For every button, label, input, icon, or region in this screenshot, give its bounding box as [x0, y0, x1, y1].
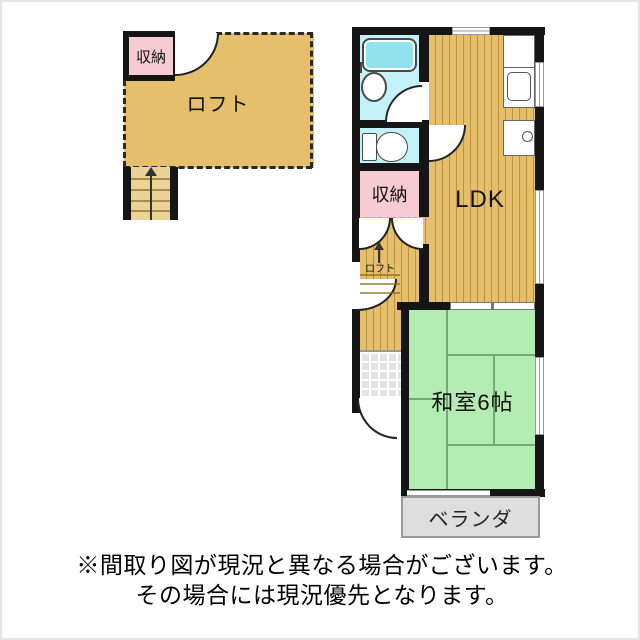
kitchen-counter-divider	[503, 67, 535, 68]
wall-right-seg	[535, 435, 544, 497]
ladder-rung	[360, 274, 400, 276]
wall-right-seg	[535, 27, 544, 62]
toilet-bowl-icon	[376, 132, 408, 162]
ladder-rung	[360, 283, 400, 285]
loft-room-label: ロフト	[168, 90, 268, 114]
sliding-door-ldk-japanese-room	[450, 302, 535, 310]
veranda: ベランダ	[401, 496, 540, 538]
kitchen-sink-icon	[507, 72, 531, 101]
wall-seam-upper	[419, 27, 429, 82]
wall-seam-lower	[419, 244, 429, 302]
toilet-tank-icon	[362, 133, 377, 161]
window-top	[452, 27, 490, 35]
storage-room: 収納	[360, 171, 419, 217]
window-kitchen	[535, 62, 544, 107]
stairs-wall-right	[170, 167, 178, 220]
wall-toilet-storage	[354, 163, 429, 171]
wall-top	[352, 27, 545, 35]
floor-plan: 収納 ロフト 収納 和室6帖	[0, 0, 640, 640]
wall-japanese-room-top	[397, 302, 450, 310]
disclaimer-line-2: その場合には現況優先となります。	[2, 580, 640, 610]
disclaimer: ※間取り図が現況と異なる場合がございます。 その場合には現況優先となります。	[2, 550, 640, 610]
entrance-door-arc	[357, 398, 397, 439]
loft-closet: 収納	[123, 31, 175, 81]
loft-border-right	[310, 32, 313, 168]
stairs-up-arrow-icon	[145, 167, 157, 176]
loft-border-top	[216, 32, 313, 35]
japanese-room-label: 和室6帖	[410, 388, 535, 414]
window-ldk	[535, 190, 544, 284]
veranda-label: ベランダ	[429, 503, 513, 532]
ladder-rung	[360, 292, 400, 294]
washbasin-icon	[361, 72, 387, 102]
window-japanese-room	[535, 357, 544, 435]
storage-label: 収納	[372, 181, 408, 207]
disclaimer-line-1: ※間取り図が現況と異なる場合がございます。	[2, 550, 640, 580]
stairs-up-arrow-line	[150, 174, 152, 220]
entrance-step-edge	[360, 350, 401, 352]
wall-seam-middle	[419, 128, 429, 217]
ldk-label: LDK	[440, 186, 520, 214]
wall-right-seg	[535, 107, 544, 190]
wall-japanese-room-left	[401, 302, 409, 497]
stove-burner-icon	[522, 131, 533, 142]
loft-border-left	[123, 80, 126, 167]
wall-right-seg	[535, 284, 544, 357]
loft-ladder-label: ロフト	[354, 261, 406, 273]
tatami-line	[446, 444, 535, 446]
tatami-line	[446, 354, 535, 356]
entrance-tile	[360, 352, 401, 396]
bathtub-icon	[362, 38, 417, 72]
loft-closet-label: 収納	[136, 46, 166, 67]
stairs-wall-left	[123, 167, 131, 220]
